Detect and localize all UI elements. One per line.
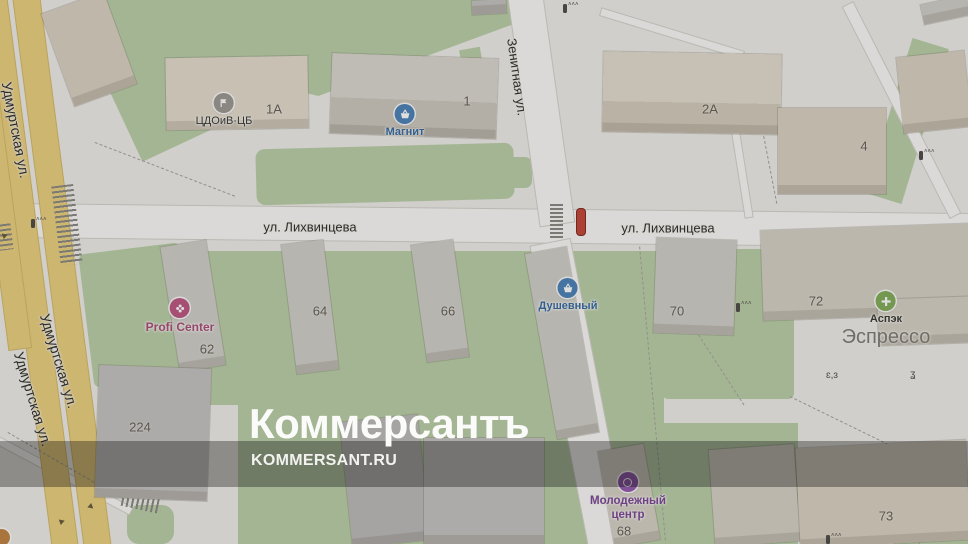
- building-2a: [602, 51, 781, 134]
- beauty-icon[interactable]: [170, 298, 190, 318]
- traffic-light-icon: [919, 151, 923, 160]
- poi-label: Profi Center: [146, 320, 215, 334]
- poi-magnit[interactable]: Магнит: [386, 104, 425, 138]
- traffic-light-icon: [31, 219, 35, 228]
- building-number: 73: [879, 509, 893, 524]
- shopping-basket-icon[interactable]: [558, 278, 578, 298]
- building: [920, 0, 968, 25]
- green-area: [255, 143, 514, 206]
- building-number: 224: [129, 420, 151, 435]
- highlight-marker[interactable]: [576, 208, 586, 236]
- street-label-likhvintseva: ул. Лихвинцева: [263, 220, 356, 235]
- poi-label: ЦДОиВ·ЦБ: [196, 115, 253, 127]
- poi-label: Магнит: [386, 126, 425, 138]
- building-number: 68: [617, 524, 631, 539]
- street-label-likhvintseva: ул. Лихвинцева: [621, 221, 714, 236]
- building-number: 4: [860, 139, 867, 154]
- playground-icon: ʓ: [910, 369, 915, 380]
- traffic-light-icon: [736, 303, 740, 312]
- building-70: [653, 238, 736, 336]
- traffic-light-icon: [826, 535, 830, 544]
- building-number: 2А: [702, 102, 718, 117]
- poi-label: Душевный: [539, 300, 598, 312]
- building-number: 64: [313, 304, 327, 319]
- shopping-basket-icon[interactable]: [395, 104, 415, 124]
- poi-aspek-espresso[interactable]: Аспэк Эспрессо: [842, 291, 931, 349]
- poi-label: Аспэк: [842, 313, 931, 325]
- building-number: 70: [670, 304, 684, 319]
- poi-profi-center[interactable]: Profi Center: [146, 298, 215, 334]
- watermark-site-url: KOMMERSANT.RU: [251, 452, 397, 470]
- poi-dushevny[interactable]: Душевный: [539, 278, 598, 312]
- building-number: 66: [441, 304, 455, 319]
- watermark-logo: Коммерсантъ: [249, 400, 529, 448]
- flag-icon[interactable]: [214, 93, 234, 113]
- building-number: 62: [200, 342, 214, 357]
- building-number: 72: [809, 294, 823, 309]
- crosswalk: [550, 204, 563, 239]
- building-number: 1: [463, 94, 470, 109]
- traffic-light-icon: [563, 4, 567, 13]
- poi-cdo[interactable]: ЦДОиВ·ЦБ: [196, 93, 253, 127]
- poi-label: Молодежный: [590, 494, 666, 509]
- building-number: 1А: [266, 102, 282, 117]
- building: [896, 51, 968, 134]
- playground-icon: ɛ,ɜ: [826, 370, 838, 381]
- poi-label: центр: [590, 509, 666, 522]
- poi-sublabel: Эспрессо: [842, 326, 931, 349]
- map-screenshot: Удмуртская ул. Удмуртская ул. Удмуртская…: [0, 0, 968, 544]
- poi-pin-clipped[interactable]: [0, 529, 10, 544]
- green-area: [498, 157, 532, 188]
- building-4: [778, 108, 886, 194]
- plus-icon[interactable]: [876, 291, 896, 311]
- building: [472, 0, 507, 15]
